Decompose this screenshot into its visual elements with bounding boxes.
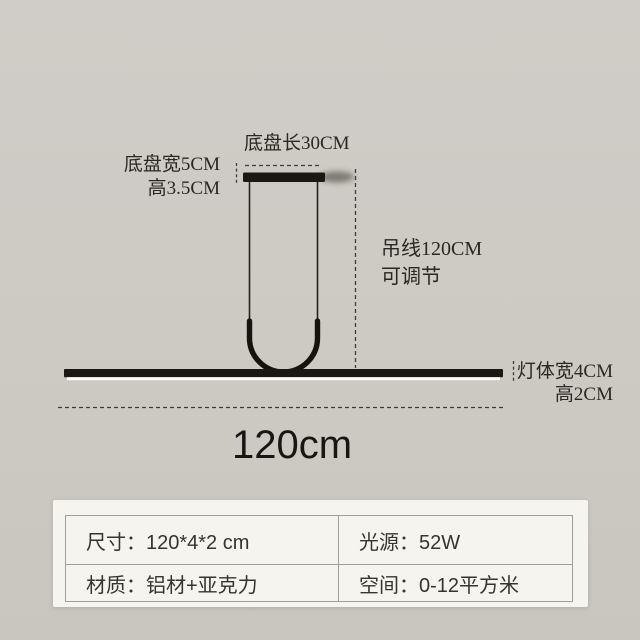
spec-panel: 尺寸：120*4*2 cm 光源：52W 材质：铝材+亚克力 空间：0-12平方… — [53, 500, 588, 607]
annotation-suspension-adjustable: 可调节 — [381, 263, 482, 291]
annotation-base-length: 底盘长30CM — [244, 128, 350, 155]
ceiling-plate — [243, 173, 325, 183]
spec-cell-space: 空间：0-12平方米 — [339, 565, 572, 601]
annotation-suspension-length: 吊线120CM — [381, 235, 482, 263]
spec-cell-size: 尺寸：120*4*2 cm — [66, 516, 339, 565]
annotation-body-width: 灯体宽4CM — [517, 360, 613, 383]
product-dimension-image: 底盘长30CM 底盘宽5CM 高3.5CM 吊线120CM 可调节 灯体宽4CM… — [0, 0, 640, 640]
annotation-body-height: 高2CM — [517, 383, 613, 406]
annotation-base-width: 底盘宽5CM — [124, 153, 220, 177]
spec-cell-power: 光源：52W — [339, 516, 572, 565]
annotation-base-height: 高3.5CM — [124, 177, 220, 201]
annotation-overall-length: 120cm — [232, 424, 352, 466]
lamp-bar — [64, 369, 503, 377]
annotation-base-width-height: 底盘宽5CM 高3.5CM — [124, 153, 220, 201]
annotation-lamp-body: 灯体宽4CM 高2CM — [517, 360, 613, 406]
spec-table: 尺寸：120*4*2 cm 光源：52W 材质：铝材+亚克力 空间：0-12平方… — [65, 515, 573, 602]
annotation-suspension-wire: 吊线120CM 可调节 — [381, 235, 482, 291]
u-shaped-connector — [250, 321, 318, 372]
ceiling-plate-shadow — [320, 172, 354, 183]
lamp-light-strip — [67, 377, 500, 380]
spec-cell-material: 材质：铝材+亚克力 — [66, 565, 339, 601]
